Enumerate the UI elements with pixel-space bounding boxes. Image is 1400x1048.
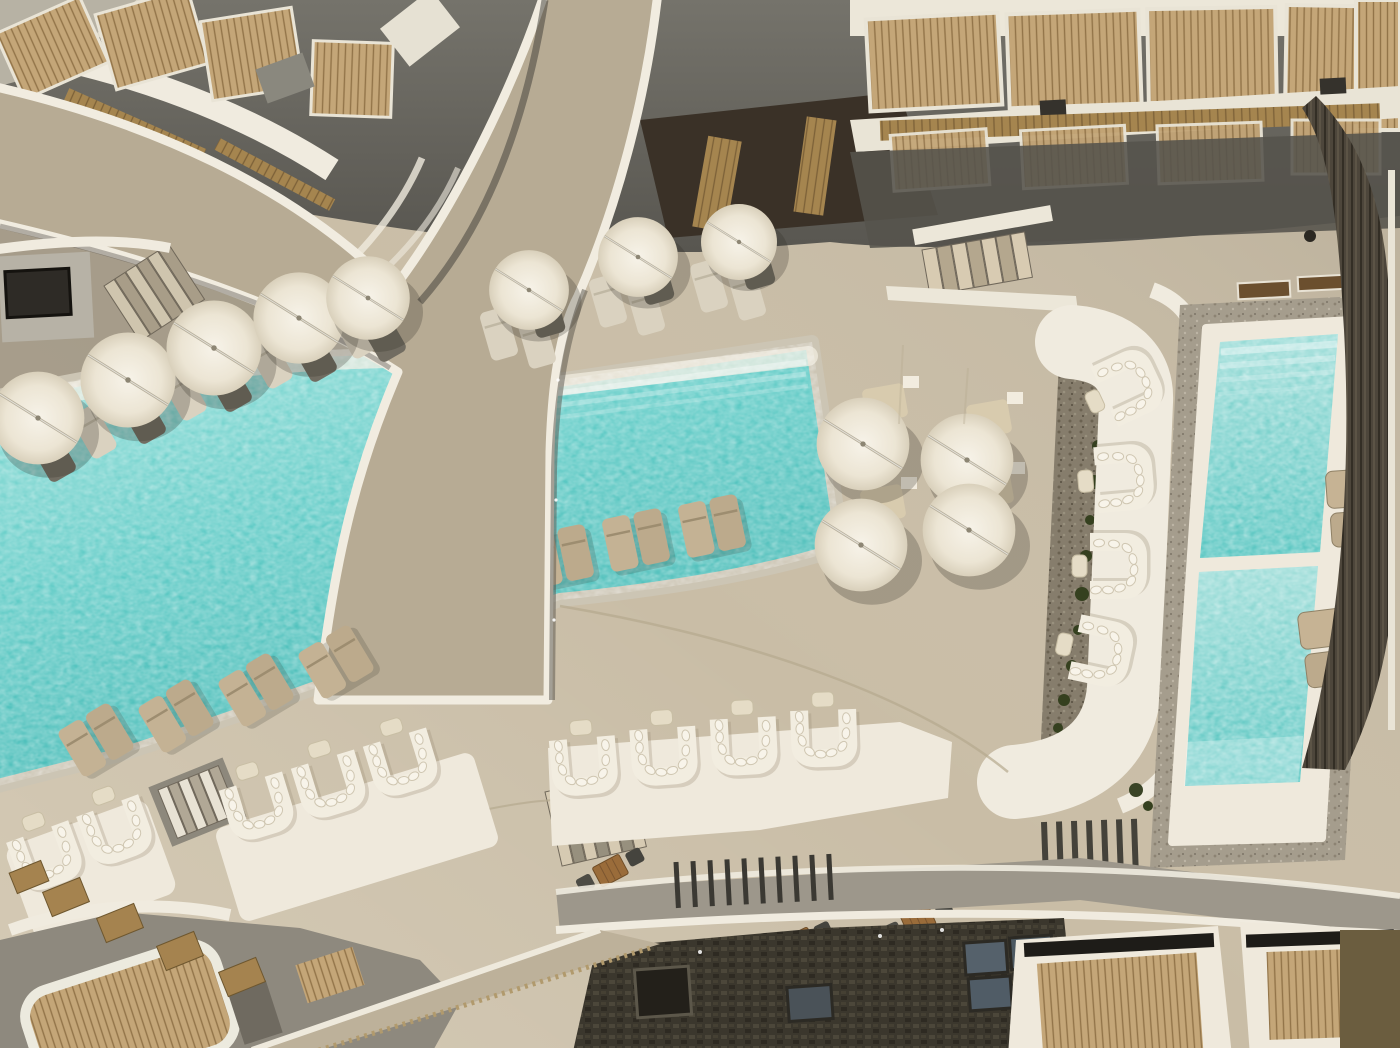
window bbox=[5, 268, 71, 317]
bamboo-roof bbox=[1037, 953, 1203, 1048]
scene-canvas bbox=[0, 0, 1400, 1048]
shrub bbox=[1143, 801, 1153, 811]
aerial-resort-photo bbox=[0, 0, 1400, 1048]
skylight bbox=[787, 985, 833, 1022]
window bbox=[1320, 77, 1347, 94]
rooftop-equipment bbox=[1304, 230, 1316, 242]
shrub bbox=[1129, 783, 1143, 797]
dark-roof-strip bbox=[1340, 930, 1400, 1048]
window bbox=[1040, 99, 1067, 116]
boundary-wall bbox=[1388, 170, 1395, 730]
roof-opening bbox=[634, 966, 691, 1018]
